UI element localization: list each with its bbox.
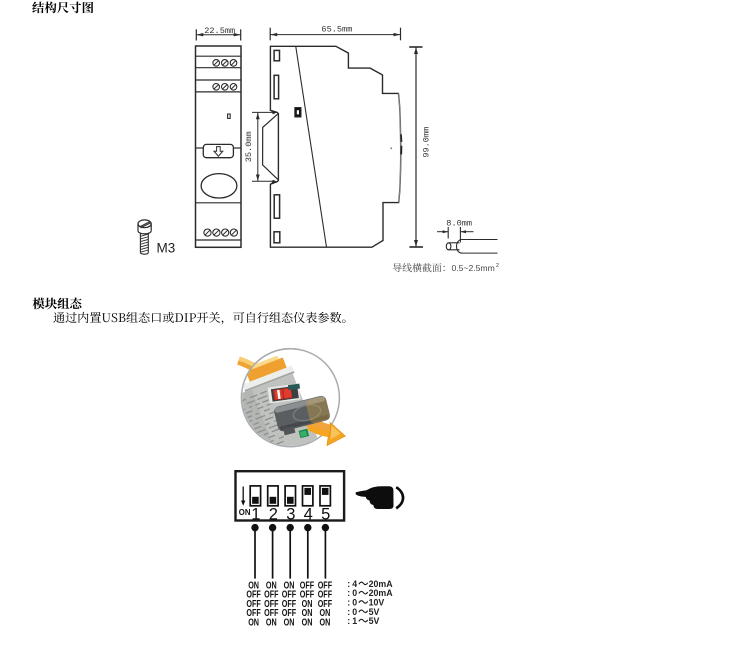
- svg-text:0.5~2.5mm: 0.5~2.5mm: [452, 263, 495, 273]
- svg-text:ON: ON: [284, 618, 295, 629]
- svg-text:ON: ON: [248, 618, 259, 629]
- svg-text:ON: ON: [266, 618, 277, 629]
- svg-text:99.0mm: 99.0mm: [421, 127, 431, 158]
- svg-text:5V: 5V: [369, 616, 380, 626]
- svg-text:65.5mm: 65.5mm: [321, 25, 352, 35]
- svg-text:2: 2: [269, 506, 278, 524]
- svg-text:M3: M3: [157, 241, 176, 256]
- svg-text::: :: [347, 616, 350, 626]
- svg-text:5: 5: [321, 506, 330, 524]
- svg-text:2: 2: [496, 263, 499, 269]
- svg-text:8.0mm: 8.0mm: [446, 219, 472, 229]
- svg-text:4: 4: [304, 506, 313, 524]
- svg-text:35.0mm: 35.0mm: [244, 131, 254, 162]
- svg-text:ON: ON: [302, 618, 313, 629]
- svg-text:ON: ON: [239, 508, 251, 517]
- svg-text:ON: ON: [320, 618, 331, 629]
- svg-text:1: 1: [352, 616, 357, 626]
- svg-text:3: 3: [286, 506, 295, 524]
- svg-text:1: 1: [251, 506, 260, 524]
